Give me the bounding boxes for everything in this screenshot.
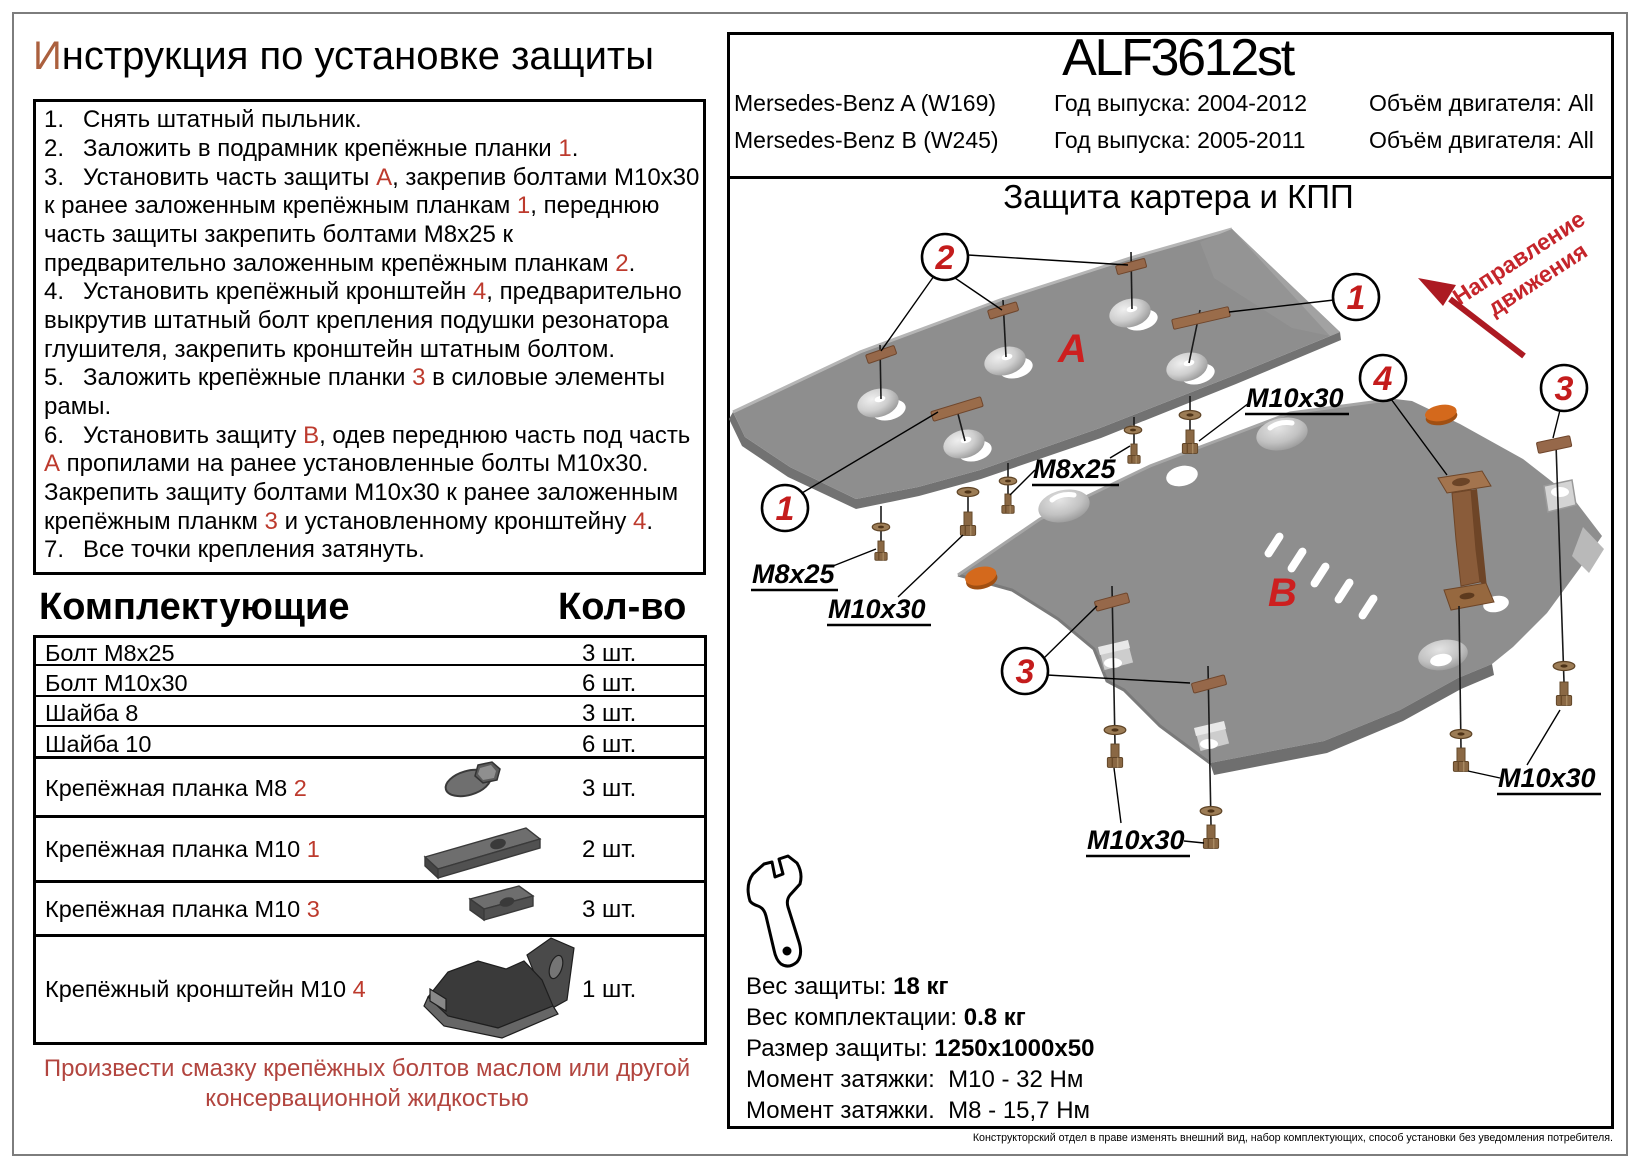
svg-text:M10x30: M10x30 — [1246, 383, 1344, 413]
svg-text:M8x25: M8x25 — [1033, 454, 1117, 484]
svg-text:M10x30: M10x30 — [1498, 763, 1596, 793]
svg-text:1: 1 — [1347, 279, 1366, 317]
svg-text:3: 3 — [1555, 370, 1574, 408]
svg-text:B: B — [1268, 571, 1297, 615]
svg-text:A: A — [1057, 327, 1087, 371]
svg-text:M8x25: M8x25 — [752, 559, 836, 589]
svg-text:1: 1 — [776, 490, 795, 528]
svg-text:4: 4 — [1373, 360, 1393, 398]
svg-text:2: 2 — [935, 239, 955, 277]
svg-text:M10x30: M10x30 — [828, 594, 926, 624]
svg-text:M10x30: M10x30 — [1087, 825, 1185, 855]
svg-text:3: 3 — [1016, 653, 1035, 691]
